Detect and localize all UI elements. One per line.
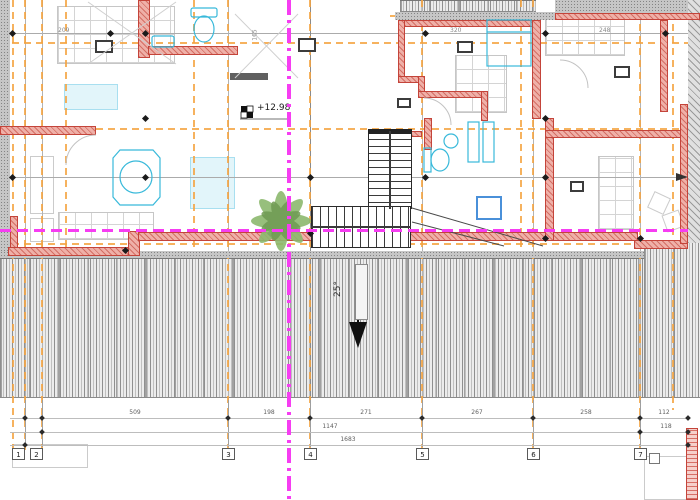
dim-value: 271 [360,410,371,416]
axis-number: 4 [308,451,312,459]
axis-bubble: 3 [222,448,235,460]
leader-arrow-icon [676,173,688,181]
sink [152,36,174,47]
axis-bubble: 4 [304,448,317,460]
dim-value: 267 [471,410,482,416]
axis-number: 6 [531,451,535,459]
door-arcs [66,60,588,165]
dim-value: 198 [263,410,274,416]
toilet-bowl [194,16,214,42]
dim-value: 112 [658,410,669,416]
axis-number: 2 [34,451,38,459]
dim-value: 509 [129,410,140,416]
dim-value: 1683 [340,437,355,443]
axis-bubble: 5 [416,448,429,460]
axis-bubble: 1 [12,448,25,460]
floor-plan-canvas: +12.98 25° 209 320 248 165 509 198 271 2… [0,0,700,500]
axis-bubble: 6 [527,448,540,460]
axis-bubble-small [649,453,660,464]
sanitary-fixtures [113,8,531,205]
shower-wall [468,122,479,162]
round-sink [444,134,458,148]
stair-cut-lines [412,208,543,246]
dim-value: 118 [660,424,671,430]
wardrobe-diagonals [88,2,298,78]
shower-wall [483,122,494,162]
room-dim-label: 248 [599,28,610,34]
dim-value: 1147 [322,424,337,430]
axis-number: 5 [420,451,424,459]
plant-icon [251,191,311,251]
bed-outline [487,20,531,66]
toilet-bowl [431,149,449,171]
room-dim-label: 209 [58,28,69,34]
axis-bubble: 2 [30,448,43,460]
room-dim-label: 320 [450,28,461,34]
section-line-horizontal [0,229,688,232]
slope-label: 25° [333,281,343,297]
axis-bubble: 7 [634,448,647,460]
toilet-tank [424,148,431,172]
axis-number: 1 [16,451,20,459]
section-line-vertical [287,0,291,500]
tub-basin [120,161,152,193]
dim-value: 258 [580,410,591,416]
axis-number: 3 [226,451,230,459]
elevation-label: +12.98 [257,103,290,113]
room-dim-label: 165 [253,29,259,40]
plan-linework [0,0,700,500]
axis-number: 7 [638,451,642,459]
